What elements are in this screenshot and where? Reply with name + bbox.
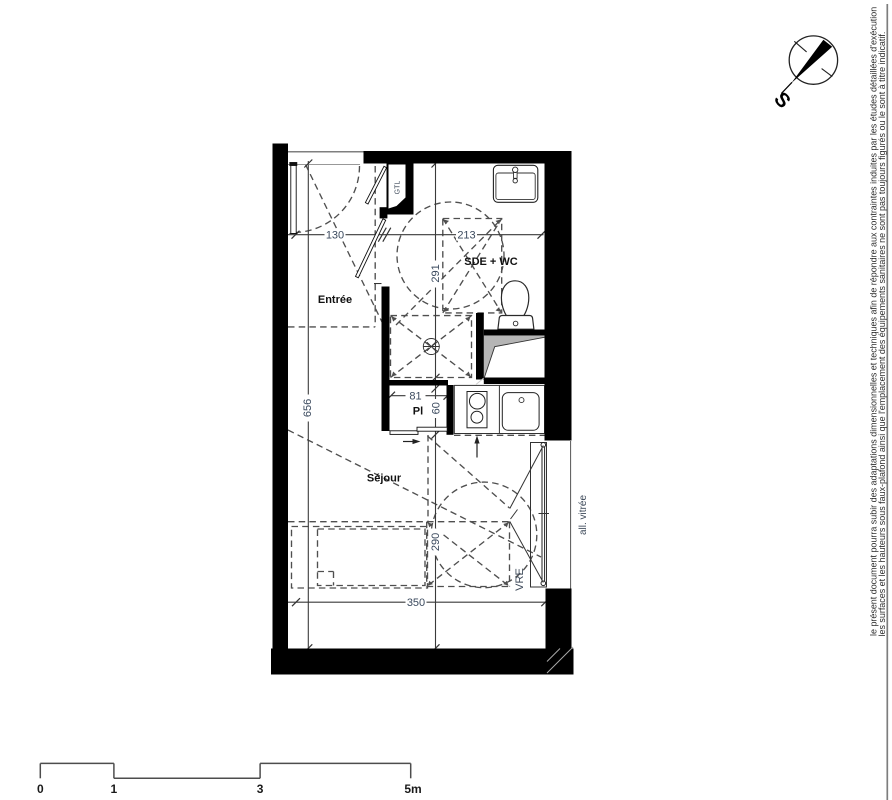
svg-text:all. vitrée: all. vitrée [578, 495, 589, 535]
svg-text:81: 81 [409, 390, 421, 402]
svg-text:SDE + WC: SDE + WC [464, 256, 518, 268]
svg-text:Entrée: Entrée [318, 294, 352, 306]
svg-text:GTL: GTL [395, 181, 402, 195]
svg-text:5m: 5m [404, 782, 421, 796]
svg-text:Séjour: Séjour [367, 473, 402, 485]
svg-text:VRE: VRE [514, 568, 526, 591]
svg-text:0: 0 [37, 782, 44, 796]
svg-text:290: 290 [430, 533, 442, 551]
svg-text:1: 1 [111, 782, 118, 796]
svg-text:les surfaces et les hauteurs s: les surfaces et les hauteurs sous faux-p… [877, 32, 887, 637]
svg-text:350: 350 [407, 597, 425, 609]
svg-text:130: 130 [326, 229, 344, 241]
svg-text:213: 213 [457, 229, 475, 241]
svg-text:291: 291 [430, 264, 442, 282]
svg-text:3: 3 [257, 782, 264, 796]
svg-text:656: 656 [302, 399, 314, 417]
svg-text:Pl: Pl [413, 406, 423, 418]
svg-text:60: 60 [430, 402, 442, 414]
